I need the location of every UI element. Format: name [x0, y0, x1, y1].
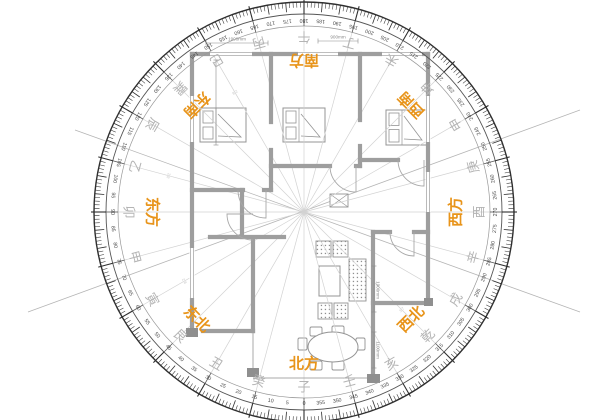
- degree-tick: [486, 123, 495, 127]
- degree-tick: [212, 396, 214, 401]
- degree-tick: [468, 92, 476, 97]
- degree-tick: [126, 320, 131, 323]
- degree-tick: [119, 308, 124, 311]
- degree-tick: [146, 74, 150, 78]
- degree-tick: [394, 396, 396, 401]
- degree-number: 160: [233, 27, 243, 36]
- degree-tick: [96, 183, 101, 184]
- degree-tick: [506, 179, 511, 180]
- degree-tick: [347, 7, 348, 12]
- degree-tick: [397, 25, 399, 30]
- degree-tick: [384, 400, 386, 405]
- bed-pillow: [203, 127, 213, 139]
- degree-tick: [95, 194, 104, 195]
- degree-tick: [507, 190, 512, 191]
- degree-tick: [104, 275, 109, 277]
- degree-tick: [225, 17, 227, 22]
- degree-number: 65: [126, 289, 134, 297]
- degree-tick: [150, 69, 154, 73]
- degree-tick: [99, 168, 104, 169]
- degree-tick: [187, 38, 190, 43]
- degree-tick: [286, 3, 287, 12]
- degree-tick: [124, 104, 129, 107]
- degree-tick: [136, 335, 140, 338]
- degree-tick: [501, 154, 506, 156]
- degree-tick: [128, 323, 133, 326]
- degree-tick: [96, 186, 101, 187]
- degree-tick: [178, 375, 181, 379]
- degree-tick: [257, 411, 258, 416]
- degree-tick: [126, 101, 131, 104]
- degree-tick: [153, 66, 157, 70]
- degree-tick: [497, 279, 502, 281]
- degree-number: 0: [303, 401, 306, 407]
- degree-number: 280: [489, 240, 496, 250]
- degree-number: 55: [143, 318, 151, 326]
- direction-label: 西方: [447, 197, 465, 227]
- degree-tick: [409, 387, 412, 392]
- degree-tick: [278, 415, 279, 420]
- degree-tick: [507, 186, 512, 187]
- degree-tick: [339, 5, 341, 14]
- mountain-character: 子: [297, 380, 310, 395]
- degree-tick: [463, 80, 467, 83]
- degree-tick: [169, 51, 175, 58]
- degree-tick: [222, 19, 224, 24]
- degree-tick: [350, 7, 351, 12]
- degree-tick: [389, 22, 393, 31]
- degree-tick: [141, 341, 145, 344]
- degree-tick: [190, 36, 193, 41]
- degree-number: 105: [114, 157, 122, 167]
- degree-tick: [264, 6, 265, 11]
- mountain-character: 乙: [126, 158, 144, 174]
- degree-tick: [492, 292, 497, 294]
- degree-tick: [111, 292, 116, 294]
- column-base: [367, 374, 380, 383]
- degree-tick: [257, 7, 258, 12]
- degree-tick: [373, 400, 376, 409]
- degree-number: 60: [134, 304, 142, 312]
- degree-number: 185: [316, 17, 325, 24]
- degree-tick: [321, 3, 322, 12]
- degree-tick: [99, 255, 104, 256]
- degree-tick: [143, 341, 150, 347]
- degree-tick: [181, 377, 184, 381]
- degree-number: 260: [489, 174, 496, 184]
- degree-tick: [488, 120, 493, 122]
- degree-tick: [96, 237, 101, 238]
- degree-tick: [163, 364, 167, 368]
- degree-number: 50: [153, 331, 161, 339]
- degree-number: 320: [422, 354, 433, 364]
- degree-number: 125: [142, 97, 152, 108]
- door-arc: [330, 166, 356, 192]
- degree-number: 110: [119, 141, 128, 151]
- degree-number: 300: [466, 303, 476, 314]
- degree-number: 205: [380, 33, 390, 42]
- degree-tick: [193, 385, 196, 390]
- sofa-block: [334, 303, 348, 319]
- degree-tick: [205, 27, 208, 32]
- degree-number: 40: [176, 355, 184, 363]
- degree-tick: [494, 289, 499, 291]
- degree-tick: [458, 77, 465, 83]
- degree-tick: [112, 127, 117, 129]
- degree-tick: [458, 74, 462, 78]
- degree-tick: [387, 20, 389, 25]
- column-base: [424, 298, 433, 306]
- degree-tick: [451, 354, 455, 358]
- degree-tick: [196, 32, 199, 37]
- degree-tick: [114, 297, 123, 301]
- degree-tick: [458, 346, 462, 350]
- degree-tick: [111, 130, 116, 132]
- diagram-canvas: 1900mm900mm1900mm1100mm 0510152025303540…: [0, 0, 600, 420]
- degree-tick: [397, 394, 399, 399]
- degree-tick: [504, 255, 509, 256]
- degree-tick: [451, 66, 455, 70]
- degree-tick: [486, 297, 495, 301]
- degree-number: 305: [456, 317, 466, 328]
- degree-tick: [469, 89, 473, 92]
- degree-tick: [239, 12, 241, 17]
- degree-tick: [500, 151, 505, 153]
- degree-number: 10: [267, 398, 274, 405]
- degree-tick: [236, 405, 238, 410]
- degree-tick: [360, 409, 362, 414]
- degree-tick: [163, 56, 167, 60]
- mountain-character: 辛: [464, 249, 482, 265]
- degree-tick: [172, 371, 175, 375]
- degree-number: 75: [115, 258, 122, 265]
- mountain-character: 辰: [143, 115, 162, 134]
- degree-number: 180: [300, 17, 309, 23]
- degree-tick: [501, 268, 506, 270]
- degree-tick: [502, 161, 507, 162]
- degree-tick: [367, 406, 369, 411]
- degree-number: 85: [109, 226, 115, 232]
- dining-chair: [298, 338, 307, 350]
- degree-tick: [339, 409, 341, 418]
- degree-number: 240: [465, 111, 475, 122]
- degree-tick: [412, 34, 415, 39]
- degree-number: 120: [133, 111, 143, 122]
- degree-tick: [148, 349, 152, 353]
- degree-tick: [117, 305, 122, 307]
- degree-tick: [108, 285, 113, 287]
- degree-number: 150: [203, 41, 214, 51]
- degree-tick: [325, 415, 326, 420]
- degree-tick: [506, 244, 511, 245]
- degree-number: 35: [190, 365, 198, 373]
- degree-tick: [146, 346, 150, 350]
- degree-tick: [504, 168, 509, 169]
- degree-tick: [329, 415, 330, 420]
- degree-tick: [438, 54, 442, 58]
- degree-number: 310: [446, 330, 456, 341]
- degree-tick: [117, 117, 122, 119]
- degree-tick: [271, 5, 272, 10]
- degree-tick: [95, 190, 100, 191]
- degree-tick: [108, 137, 113, 139]
- degree-tick: [115, 302, 120, 304]
- degree-number: 295: [473, 288, 482, 298]
- degree-tick: [97, 176, 106, 178]
- degree-tick: [246, 10, 248, 15]
- degree-number: 190: [332, 19, 342, 26]
- degree-number: 200: [364, 27, 374, 36]
- bed-pillow: [286, 127, 296, 139]
- degree-tick: [476, 323, 481, 326]
- degree-tick: [105, 144, 110, 146]
- degree-tick: [418, 382, 421, 387]
- degree-tick: [336, 414, 337, 419]
- mountain-character: 庚: [464, 158, 482, 174]
- degree-tick: [219, 20, 221, 25]
- degree-tick: [424, 377, 427, 381]
- mountain-character: 寅: [143, 290, 162, 309]
- degree-number: 5: [286, 400, 290, 406]
- degree-tick: [433, 49, 436, 53]
- mountain-character: 壬: [341, 372, 357, 390]
- degree-tick: [169, 366, 175, 373]
- degree-tick: [178, 44, 181, 48]
- degree-number: 330: [395, 373, 406, 383]
- degree-number: 235: [456, 97, 466, 108]
- mountain-character: 申: [446, 115, 465, 134]
- degree-tick: [486, 117, 491, 119]
- degree-tick: [504, 229, 513, 230]
- degree-tick: [103, 151, 108, 153]
- degree-tick: [479, 104, 484, 107]
- mountain-character: 亥: [382, 354, 401, 373]
- degree-tick: [458, 341, 465, 347]
- degree-tick: [202, 391, 205, 396]
- degree-tick: [100, 161, 105, 162]
- degree-tick: [275, 415, 276, 420]
- window: [425, 172, 430, 212]
- degree-tick: [491, 127, 496, 129]
- degree-tick: [184, 376, 189, 384]
- degree-tick: [193, 34, 196, 39]
- mountain-character: 午: [297, 30, 310, 45]
- degree-tick: [463, 341, 467, 344]
- degree-tick: [107, 281, 116, 284]
- degree-tick: [268, 409, 270, 418]
- degree-tick: [433, 366, 439, 373]
- window: [425, 96, 430, 142]
- degree-tick: [491, 295, 496, 297]
- degree-tick: [371, 405, 373, 410]
- degree-tick: [104, 147, 109, 149]
- degree-tick: [465, 83, 469, 86]
- degree-tick: [400, 27, 403, 32]
- degree-tick: [381, 17, 383, 22]
- degree-tick: [109, 289, 114, 291]
- degree-tick: [148, 71, 152, 75]
- degree-tick: [465, 338, 469, 341]
- degree-tick: [503, 258, 508, 259]
- degree-tick: [443, 362, 447, 366]
- degree-tick: [325, 3, 326, 8]
- degree-tick: [161, 58, 165, 62]
- bed-pillow: [389, 113, 399, 126]
- degree-number: 100: [111, 174, 118, 184]
- degree-tick: [253, 410, 254, 415]
- degree-tick: [415, 36, 418, 41]
- degree-number: 210: [395, 41, 406, 51]
- degree-tick: [500, 272, 505, 274]
- degree-tick: [119, 113, 124, 116]
- degree-number: 270: [493, 208, 499, 217]
- degree-number: 195: [349, 22, 359, 30]
- degree-tick: [467, 86, 471, 89]
- degree-tick: [141, 80, 145, 83]
- degree-tick: [136, 86, 140, 89]
- degree-tick: [430, 47, 433, 51]
- degree-tick: [424, 42, 427, 46]
- degree-tick: [114, 123, 123, 127]
- degree-tick: [102, 154, 107, 156]
- degree-tick: [181, 42, 184, 46]
- mountain-character: 丑: [207, 354, 226, 373]
- mountain-character: 酉: [472, 205, 487, 218]
- degree-tick: [329, 4, 330, 9]
- degree-tick: [427, 44, 430, 48]
- degree-number: 20: [235, 389, 243, 397]
- degree-tick: [139, 83, 143, 86]
- degree-tick: [347, 412, 348, 417]
- degree-tick: [98, 251, 103, 252]
- degree-number: 325: [409, 364, 420, 374]
- degree-tick: [418, 38, 421, 43]
- degree-tick: [409, 32, 412, 37]
- degree-number: 285: [485, 257, 493, 267]
- degree-tick: [105, 279, 110, 281]
- degree-tick: [243, 11, 245, 16]
- degree-tick: [115, 120, 120, 122]
- degree-tick: [278, 4, 279, 9]
- degree-tick: [205, 393, 208, 398]
- mountain-character: 卯: [122, 205, 137, 218]
- degree-tick: [246, 409, 248, 414]
- degree-tick: [236, 13, 238, 18]
- direction-label: 东方: [144, 197, 162, 227]
- degree-tick: [498, 147, 503, 149]
- degree-tick: [97, 247, 106, 249]
- degree-tick: [120, 311, 125, 314]
- degree-tick: [275, 4, 276, 9]
- degree-tick: [128, 98, 133, 101]
- degree-tick: [264, 413, 265, 418]
- degree-tick: [95, 233, 100, 234]
- degree-tick: [282, 415, 283, 420]
- degree-tick: [419, 376, 424, 384]
- direction-label: 北方: [289, 355, 319, 373]
- degree-tick: [229, 16, 231, 21]
- degree-tick: [161, 362, 165, 366]
- degree-tick: [239, 406, 241, 411]
- degree-tick: [476, 98, 481, 101]
- degree-tick: [495, 285, 500, 287]
- degree-tick: [97, 179, 102, 180]
- degree-tick: [479, 317, 484, 320]
- door-arc: [398, 160, 424, 186]
- degree-tick: [419, 40, 424, 48]
- degree-tick: [332, 415, 333, 420]
- degree-tick: [97, 244, 102, 245]
- mountain-character: 戌: [446, 290, 465, 309]
- degree-tick: [441, 56, 445, 60]
- degree-tick: [446, 359, 450, 363]
- degree-tick: [381, 402, 383, 407]
- degree-tick: [139, 338, 143, 341]
- degree-tick: [243, 408, 245, 413]
- degree-tick: [377, 403, 379, 408]
- degree-tick: [130, 326, 135, 329]
- degree-number: 95: [109, 192, 115, 198]
- degree-number: 25: [219, 382, 227, 390]
- degree-tick: [364, 408, 366, 413]
- sector-radial-line: [143, 212, 304, 305]
- fenjin-mark: 2 8: [231, 89, 239, 96]
- degree-tick: [166, 54, 170, 58]
- degree-tick: [507, 233, 512, 234]
- degree-tick: [485, 113, 490, 116]
- degree-tick: [132, 327, 140, 332]
- degree-tick: [202, 28, 205, 33]
- degree-tick: [367, 12, 369, 17]
- degree-tick: [260, 7, 261, 12]
- degree-tick: [184, 40, 189, 48]
- degree-tick: [501, 176, 510, 178]
- degree-tick: [403, 28, 406, 33]
- degree-number: 350: [333, 397, 343, 404]
- degree-tick: [494, 133, 499, 135]
- degree-number: 255: [485, 157, 493, 167]
- degree-tick: [150, 351, 154, 355]
- degree-tick: [219, 399, 221, 404]
- degree-tick: [336, 5, 337, 10]
- degree-tick: [350, 411, 351, 416]
- degree-tick: [343, 6, 344, 11]
- degree-tick: [469, 332, 473, 335]
- degree-tick: [282, 3, 283, 8]
- degree-tick: [172, 49, 175, 53]
- degree-tick: [474, 95, 479, 98]
- degree-tick: [225, 402, 227, 407]
- degree-tick: [456, 71, 460, 75]
- degree-number: 165: [249, 23, 259, 31]
- degree-tick: [95, 229, 104, 230]
- degree-number: 140: [175, 60, 186, 70]
- degree-tick: [343, 413, 344, 418]
- degree-number: 220: [422, 60, 433, 70]
- dimension-text: 900mm: [330, 35, 345, 40]
- fenjin-mark: 2 8: [181, 277, 188, 285]
- door-arc: [390, 232, 414, 256]
- window: [189, 248, 194, 298]
- degree-tick: [232, 400, 235, 409]
- degree-tick: [444, 61, 455, 72]
- degree-tick: [212, 23, 214, 28]
- degree-tick: [175, 373, 178, 377]
- degree-tick: [353, 410, 354, 415]
- degree-tick: [153, 354, 157, 358]
- degree-tick: [485, 308, 490, 311]
- degree-tick: [443, 58, 447, 62]
